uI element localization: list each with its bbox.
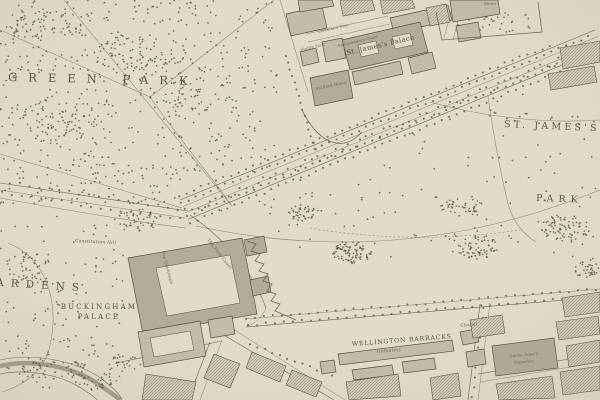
label-park: PARK	[536, 193, 583, 206]
label-mews: Mews	[484, 1, 496, 6]
label-buckingham: BUCKINGHAM	[61, 303, 137, 311]
building-block	[430, 373, 461, 400]
paper-background	[0, 0, 600, 400]
palace-east-wing	[244, 236, 267, 256]
building-block	[466, 349, 486, 367]
label-palace: PALACE	[78, 313, 121, 321]
barracks-block	[320, 360, 336, 374]
os-map-st-jamess-area: GREEN PARK ST. JAMES'S PARK ARDENS BUCKI…	[0, 0, 600, 400]
map-viewport: GREEN PARK ST. JAMES'S PARK ARDENS BUCKI…	[0, 0, 600, 400]
palace-south-block	[208, 316, 235, 338]
palace-east-wing	[250, 276, 271, 296]
building-block	[456, 22, 481, 42]
